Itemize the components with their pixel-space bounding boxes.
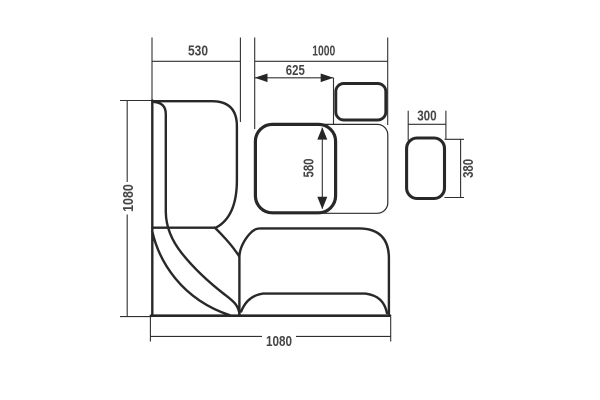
svg-text:1080: 1080 <box>121 184 137 212</box>
svg-text:380: 380 <box>461 159 477 178</box>
svg-text:530: 530 <box>188 44 208 60</box>
svg-text:580: 580 <box>302 159 318 178</box>
svg-text:625: 625 <box>286 63 305 79</box>
svg-text:300: 300 <box>417 108 437 124</box>
svg-text:1080: 1080 <box>266 334 292 350</box>
svg-text:1000: 1000 <box>312 44 335 60</box>
